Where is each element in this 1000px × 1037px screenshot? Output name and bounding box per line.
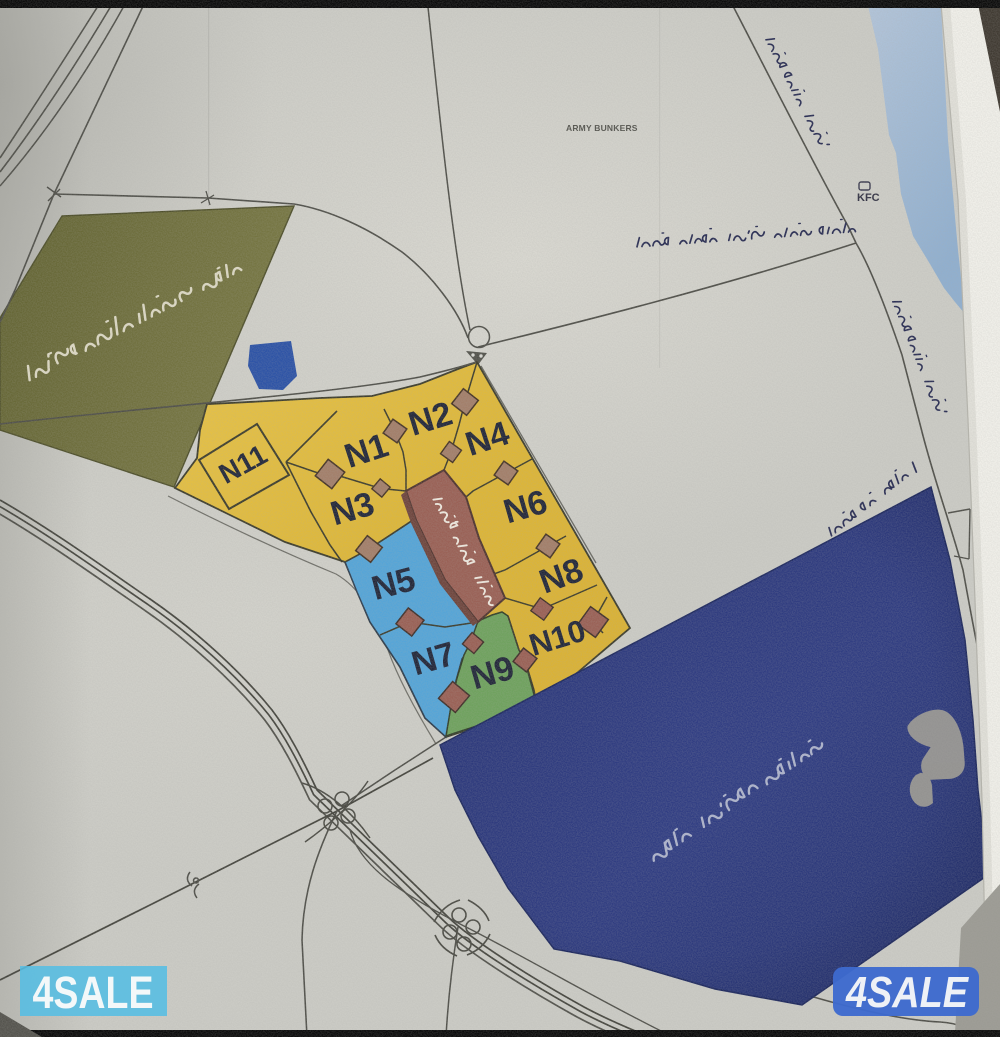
svg-text:4SALE: 4SALE bbox=[33, 967, 154, 1018]
svg-text:4SALE: 4SALE bbox=[845, 968, 969, 1017]
